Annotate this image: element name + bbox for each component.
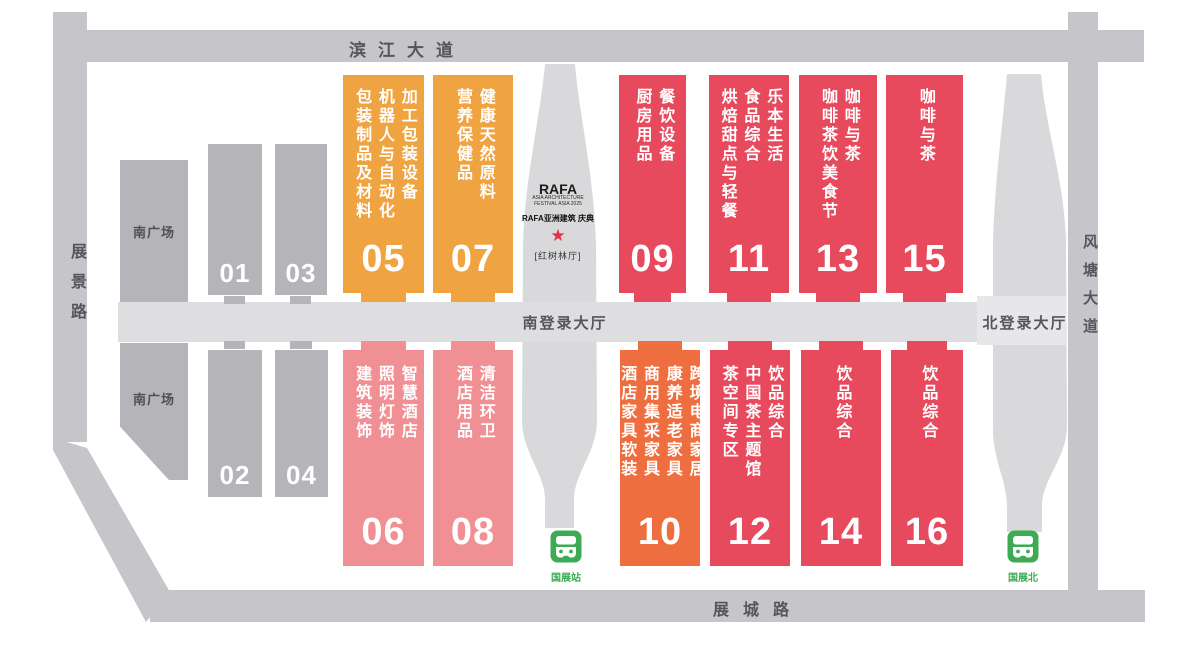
hall-15: 咖啡与茶 15 [886, 75, 963, 293]
star-icon: ★ [512, 226, 604, 246]
hall-11-connector [727, 293, 772, 302]
hall-13: 咖啡与茶 咖啡茶饮美食节 13 [799, 75, 877, 293]
south-plaza-lower-label: 南广场 [133, 389, 175, 408]
metro-station-south-label: 国展站 [549, 569, 583, 584]
hall-04-number: 04 [275, 460, 328, 491]
metro-icon [550, 530, 582, 563]
hall-06: 智慧酒店 照明灯饰 建筑装饰 06 [343, 350, 424, 566]
hall-07-number: 07 [433, 238, 513, 281]
south-plaza-upper-label: 南广场 [133, 222, 175, 241]
hall-06-number: 06 [343, 511, 424, 554]
south-hall-tower [522, 64, 597, 528]
hall-13-number: 13 [799, 238, 877, 281]
road-label-fengtang-avenue: 风塘大道 [1066, 155, 1100, 425]
hall-01: 01 [208, 144, 262, 295]
hall-14-connector [819, 341, 864, 350]
south-plaza-upper: 南广场 [120, 160, 188, 302]
hall-01-number: 01 [208, 258, 262, 289]
hall-09: 餐饮设备 厨房用品 09 [619, 75, 686, 293]
hall-13-connector [816, 293, 860, 302]
rafa-venue-label: [红树林厅] [512, 249, 604, 262]
hall-08-number: 08 [433, 511, 513, 554]
metro-station-north: 国展北 [1006, 530, 1040, 584]
hall-16: 饮品综合 16 [891, 350, 963, 566]
hall-02-number: 02 [208, 460, 262, 491]
hall-05: 加工包装设备 机器人与自动化 包装制品及材料 05 [343, 75, 424, 293]
hall-10-connector [638, 341, 683, 350]
rafa-event-block: RAFA ASIA ARCHITECTURE FESTIVAL ASIA 202… [512, 182, 604, 262]
road-label-zhanjing-road: 展景路 [52, 158, 88, 418]
hall-14: 饮品综合 14 [801, 350, 881, 566]
hall-11: 乐本生活 食品综合 烘焙甜点与轻餐 11 [709, 75, 789, 293]
hall-06-connector [361, 341, 406, 350]
hall-04: 04 [275, 350, 328, 497]
hall-11-number: 11 [709, 238, 789, 281]
hall-01-connector [224, 296, 246, 304]
metro-icon [1007, 530, 1039, 563]
hall-08: 清洁环卫 酒店用品 08 [433, 350, 513, 566]
hall-02: 02 [208, 350, 262, 497]
hall-16-number: 16 [891, 511, 963, 554]
hall-02-connector [224, 341, 246, 349]
hall-15-connector [903, 293, 946, 302]
hall-03-number: 03 [275, 258, 327, 289]
hall-10: 跨境电商家居 康养适老家具 商用集采家具 酒店家具软装 10 [620, 350, 700, 566]
south-lobby-label: 南登录大厅 [500, 312, 630, 333]
rafa-subtitle-line2: FESTIVAL ASIA 2025 [512, 202, 604, 208]
hall-03-connector [290, 296, 311, 304]
road-label-zhancheng-road: 展城路 [648, 596, 868, 620]
road-top [53, 30, 1144, 62]
hall-04-connector [290, 341, 311, 349]
north-lobby-label: 北登录大厅 [962, 312, 1088, 333]
rafa-logo: RAFA [512, 182, 604, 196]
hall-12-connector [728, 341, 773, 350]
road-label-binjiang-avenue: 滨江大道 [297, 36, 517, 61]
hall-10-number: 10 [620, 511, 700, 554]
hall-07: 健康天然原料 营养保健品 07 [433, 75, 513, 293]
metro-station-south: 国展站 [549, 530, 583, 584]
hall-14-number: 14 [801, 511, 881, 554]
rafa-chinese-title: RAFA亚洲建筑 庆典 [512, 213, 604, 224]
hall-15-number: 15 [886, 238, 963, 281]
hall-16-connector [907, 341, 947, 350]
hall-12: 饮品综合 中国茶主题馆 茶空间专区 12 [710, 350, 790, 566]
hall-09-connector [634, 293, 672, 302]
venue-map: 滨江大道 展景路 风塘大道 展城路 南登录大厅 北登录大厅 南广场 南广场 01… [0, 0, 1200, 645]
hall-05-number: 05 [343, 238, 424, 281]
hall-05-connector [361, 293, 406, 302]
hall-03: 03 [275, 144, 327, 295]
hall-08-connector [451, 341, 496, 350]
hall-09-number: 09 [619, 238, 686, 281]
hall-12-number: 12 [710, 511, 790, 554]
hall-07-connector [451, 293, 496, 302]
metro-station-north-label: 国展北 [1006, 569, 1040, 584]
